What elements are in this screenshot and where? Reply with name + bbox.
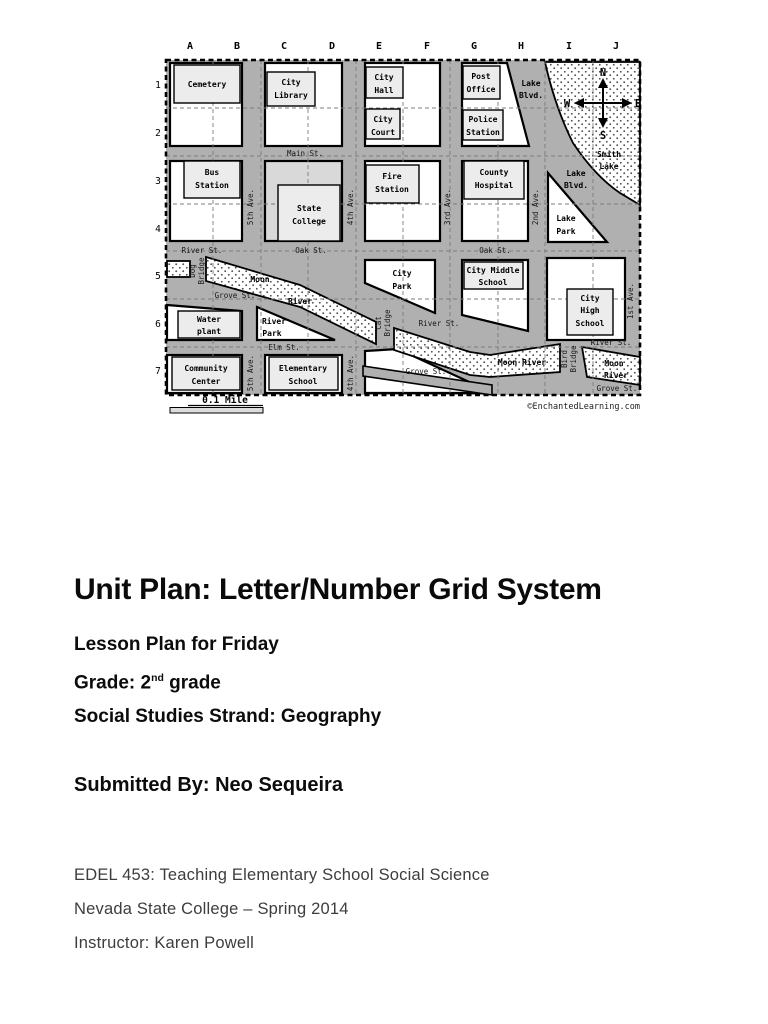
grade-prefix: Grade: 2 — [74, 672, 151, 693]
moon-river-label: Moon — [250, 275, 269, 284]
county-hospital-label: Hospital — [475, 180, 514, 190]
state-college-label: College — [292, 217, 326, 226]
street-label-5th-ave: 5th Ave. — [246, 189, 255, 225]
post-office-label: Post — [471, 72, 490, 81]
street-label-river: River St. — [182, 246, 223, 255]
street-label-river: River St. — [591, 338, 632, 347]
fire-station-label: Station — [375, 184, 409, 194]
elementary-school-label: School — [289, 377, 318, 386]
street-label-4th-ave: 4th Ave. — [346, 189, 355, 225]
compass-west-label: W — [564, 98, 571, 110]
street-label-grove: Grove St. — [215, 291, 256, 300]
map-scale: 0.1 Mile — [170, 395, 263, 413]
grid-letter: H — [518, 41, 524, 52]
street-label-main: Main St. — [287, 149, 323, 158]
scale-label: 0.1 Mile — [202, 395, 248, 406]
post-office-label: Office — [467, 84, 496, 94]
lesson-plan-line: Lesson Plan for Friday — [74, 634, 381, 655]
map-credit: ©EnchantedLearning.com — [527, 402, 640, 412]
lake-blvd-label: Lake — [566, 169, 585, 178]
submitted-by-line: Submitted By: Neo Sequeira — [74, 774, 343, 797]
lake-blvd-label: Blvd. — [564, 181, 588, 190]
bird-bridge-label: Bird — [560, 350, 569, 368]
street-label-grove: Grove St. — [597, 384, 638, 393]
moon-river-label: Moon River — [498, 357, 546, 367]
police-station-label: Station — [466, 127, 500, 137]
course-line: EDEL 453: Teaching Elementary School Soc… — [74, 866, 490, 884]
dog-bridge-label: Dog — [188, 264, 197, 278]
grid-letter: I — [566, 41, 572, 52]
grid-number: 1 — [155, 80, 161, 91]
grid-letter: D — [329, 41, 335, 52]
city-court-label: City — [373, 114, 392, 124]
grade-line: Grade: 2nd grade — [74, 668, 381, 693]
grid-letter: B — [234, 41, 240, 52]
page-title: Unit Plan: Letter/Number Grid System — [74, 573, 602, 607]
state-college-label: State — [297, 204, 321, 213]
city-map: A B C D E F G H I J 1 2 3 4 5 6 7 — [150, 35, 645, 415]
grid-letter: G — [471, 41, 477, 52]
river-park-label: River — [262, 316, 286, 326]
post-office-box — [463, 66, 500, 99]
lesson-info-block: Lesson Plan for Friday Grade: 2nd grade … — [74, 634, 381, 740]
bus-station-label: Station — [195, 180, 229, 190]
grade-suffix: grade — [164, 672, 221, 693]
grid-number: 7 — [155, 366, 161, 377]
street-label-3rd-ave: 3rd Ave. — [443, 189, 452, 225]
grid-number: 6 — [155, 319, 161, 330]
city-high-school-label: School — [576, 319, 605, 328]
cat-bridge-label: Cat — [374, 316, 383, 330]
city-hall-label: Hall — [374, 86, 393, 95]
bus-station-box — [184, 161, 240, 198]
compass-north-label: N — [600, 67, 606, 79]
grid-row-numbers: 1 2 3 4 5 6 7 — [155, 80, 161, 377]
bird-bridge-label: Bridge — [569, 345, 578, 373]
city-high-school-label: High — [580, 305, 599, 315]
grid-letter: J — [613, 41, 619, 52]
moon-river-label: River — [604, 370, 628, 380]
compass-south-label: S — [600, 130, 606, 142]
lake-blvd-label: Lake — [521, 79, 540, 88]
city-hall-label: City — [374, 72, 393, 82]
elementary-school-label: Elementary — [279, 364, 327, 373]
course-footer-block: EDEL 453: Teaching Elementary School Soc… — [74, 866, 490, 968]
water-plant-label: Water — [197, 315, 221, 324]
city-middle-school-label: School — [479, 278, 508, 287]
grid-number: 5 — [155, 271, 161, 282]
grid-number: 3 — [155, 176, 161, 187]
lake-park-label: Park — [556, 227, 575, 236]
city-high-school-label: City — [580, 293, 599, 303]
city-map-svg: A B C D E F G H I J 1 2 3 4 5 6 7 — [150, 35, 645, 415]
instructor-line: Instructor: Karen Powell — [74, 934, 490, 952]
street-label-elm: Elm St. — [268, 343, 300, 352]
grid-number: 4 — [155, 224, 161, 235]
strand-line: Social Studies Strand: Geography — [74, 706, 381, 727]
grade-ordinal: nd — [151, 673, 164, 684]
street-label-river: River St. — [419, 319, 460, 328]
fire-station-box — [366, 165, 419, 203]
city-court-label: Court — [371, 128, 395, 137]
fire-station-label: Fire — [382, 171, 401, 181]
grid-letter: E — [376, 41, 382, 52]
street-label-5th-ave: 5th Ave. — [246, 355, 255, 391]
state-college-box — [278, 185, 340, 241]
police-station-label: Police — [469, 114, 498, 124]
moon-river-label: River — [288, 296, 312, 306]
street-label-grove: Grove St. — [406, 367, 447, 376]
street-label-2nd-ave: 2nd Ave. — [531, 189, 540, 225]
bus-station-label: Bus — [205, 168, 220, 177]
lake-park-label: Lake — [556, 214, 575, 223]
lake-blvd-label: Blvd. — [519, 91, 543, 100]
street-label-1st-ave: 1st Ave. — [626, 283, 635, 319]
city-library-label: Library — [274, 90, 308, 100]
college-term-line: Nevada State College – Spring 2014 — [74, 900, 490, 918]
city-park-label: Park — [392, 282, 411, 291]
county-hospital-label: County — [480, 168, 509, 177]
street-label-4th-ave: 4th Ave. — [346, 355, 355, 391]
street-label-oak: Oak St. — [295, 246, 327, 255]
cemetery-label: Cemetery — [188, 80, 227, 89]
smith-lake-label: Lake — [599, 162, 618, 171]
water-plant-label: plant — [197, 327, 221, 336]
dog-bridge-label: Bridge — [197, 257, 206, 285]
community-center-label: Center — [192, 377, 221, 386]
city-library-label: City — [281, 77, 300, 87]
grid-letter: A — [187, 41, 193, 52]
river-park-label: Park — [262, 329, 281, 338]
grid-number: 2 — [155, 128, 161, 139]
document-page: A B C D E F G H I J 1 2 3 4 5 6 7 — [0, 0, 768, 1024]
grid-letter: F — [424, 41, 430, 52]
cat-bridge-label: Bridge — [383, 309, 392, 337]
city-park-label: City — [392, 268, 411, 278]
community-center-label: Community — [184, 363, 228, 373]
county-hospital-box — [464, 161, 524, 199]
moon-river-label: Moon — [604, 359, 623, 368]
street-label-oak: Oak St. — [479, 246, 511, 255]
grid-letter: C — [281, 41, 287, 52]
smith-lake-label: Smith — [597, 149, 621, 159]
grid-column-letters: A B C D E F G H I J — [187, 41, 619, 52]
city-middle-school-label: City Middle — [467, 265, 520, 275]
